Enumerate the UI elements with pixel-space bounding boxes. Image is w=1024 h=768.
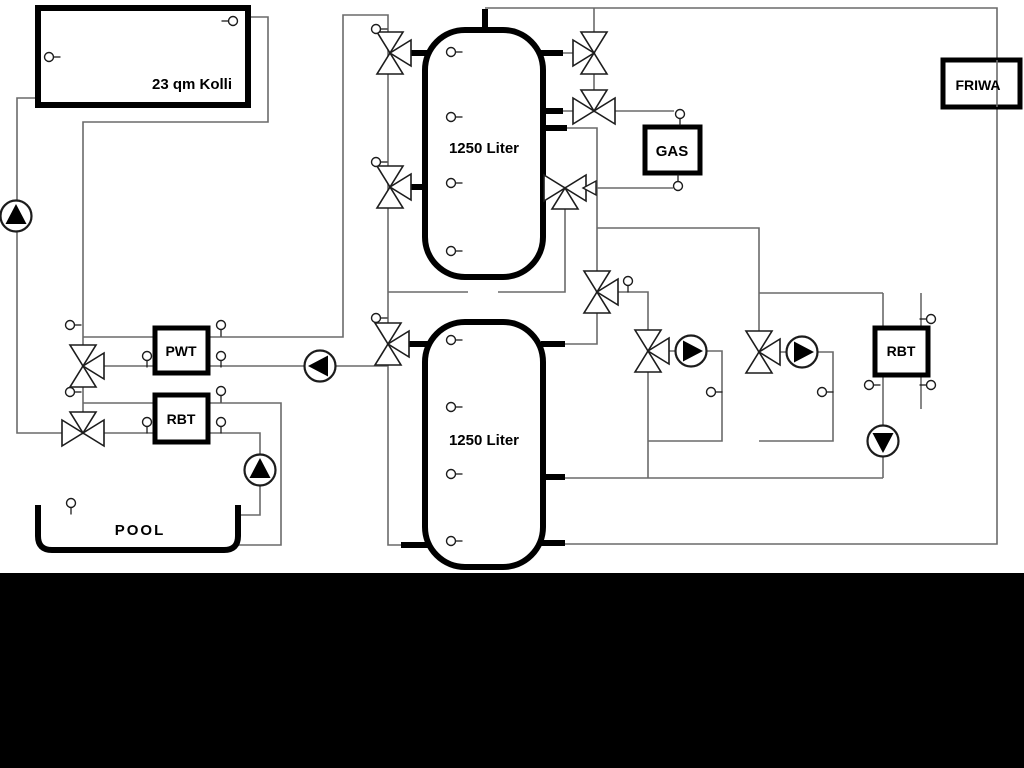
pwt-charge-pump-icon xyxy=(305,351,336,382)
friwa-label: FRIWA xyxy=(955,77,1000,93)
rbt-right-label: RBT xyxy=(887,343,916,359)
buffer-tank-upper-label: 1250 Liter xyxy=(449,140,519,157)
bottom-black-bar xyxy=(0,573,1024,768)
rbt-left-label: RBT xyxy=(167,411,196,427)
solar-pump-icon xyxy=(1,201,32,232)
heating-pump-1-icon xyxy=(676,336,707,367)
solar-collector-label: 23 qm Kolli xyxy=(152,76,232,93)
pool-label: POOL xyxy=(115,522,166,539)
pool-pump-icon xyxy=(245,455,276,486)
gas-boiler-label: GAS xyxy=(656,143,689,160)
heating-pump-2-icon xyxy=(787,337,818,368)
schematic: 23 qm Kolli 1250 Liter 1250 Liter GAS FR… xyxy=(0,0,1024,768)
rbt-circulation-pump-icon xyxy=(868,426,899,457)
buffer-tank-lower-label: 1250 Liter xyxy=(449,432,519,449)
pwt-label: PWT xyxy=(165,343,197,359)
schematic-page: 23 qm Kolli 1250 Liter 1250 Liter GAS FR… xyxy=(0,0,1024,768)
